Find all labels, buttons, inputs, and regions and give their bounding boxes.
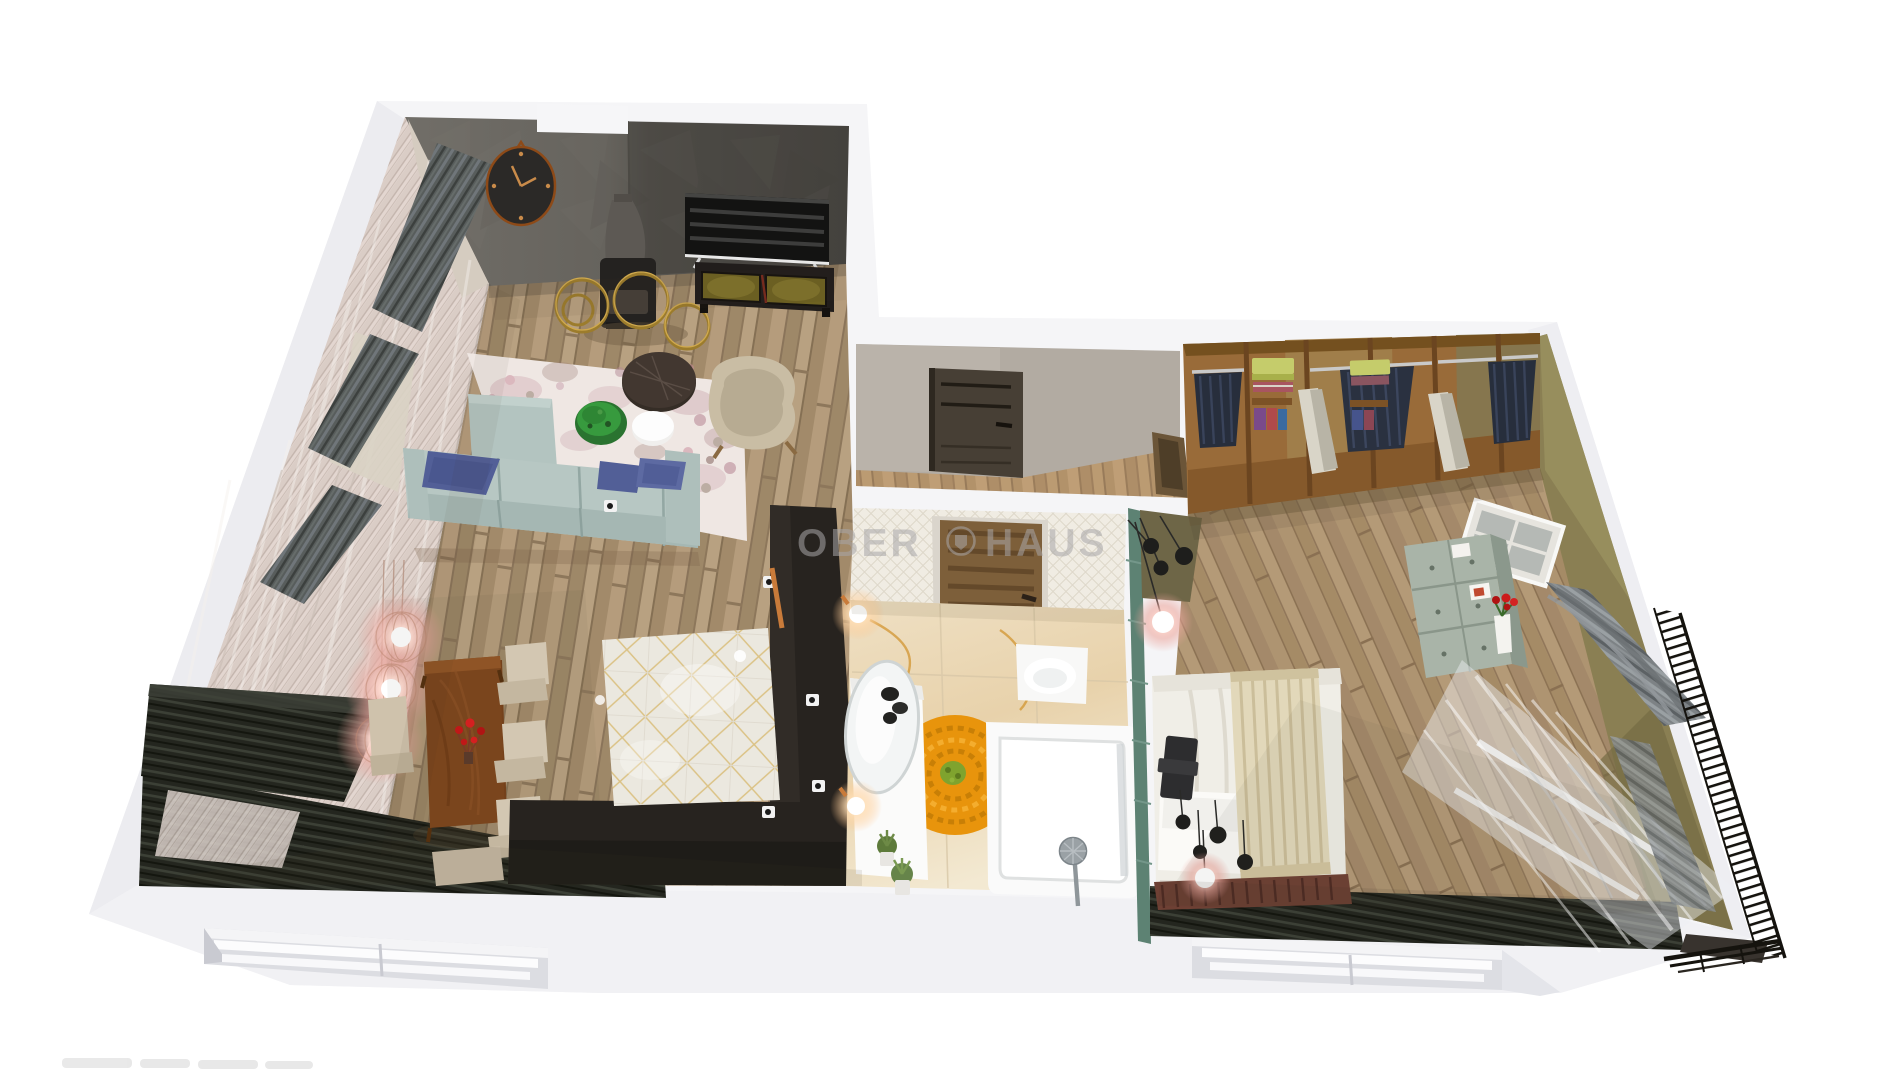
svg-text:OBER: OBER [797,522,922,565]
svg-text:HAUS: HAUS [985,522,1108,565]
